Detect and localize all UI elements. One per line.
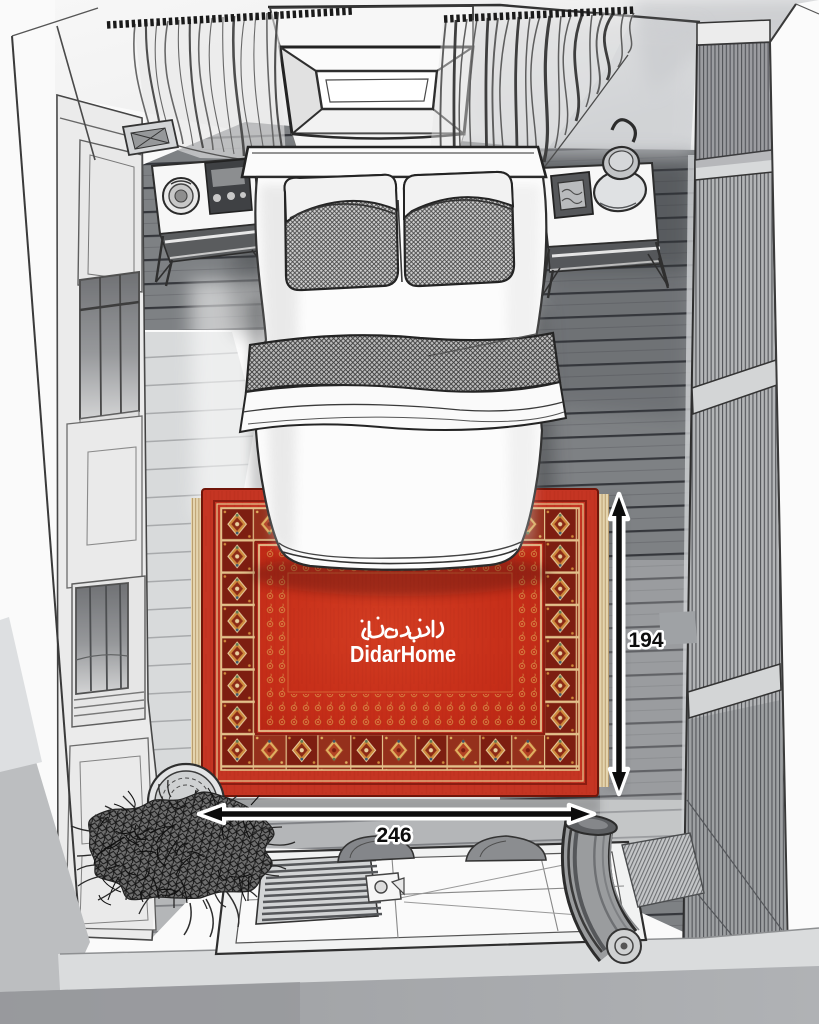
svg-text:194: 194: [628, 629, 663, 652]
svg-text:DidarHome: DidarHome: [350, 641, 456, 667]
svg-text:246: 246: [376, 824, 411, 847]
